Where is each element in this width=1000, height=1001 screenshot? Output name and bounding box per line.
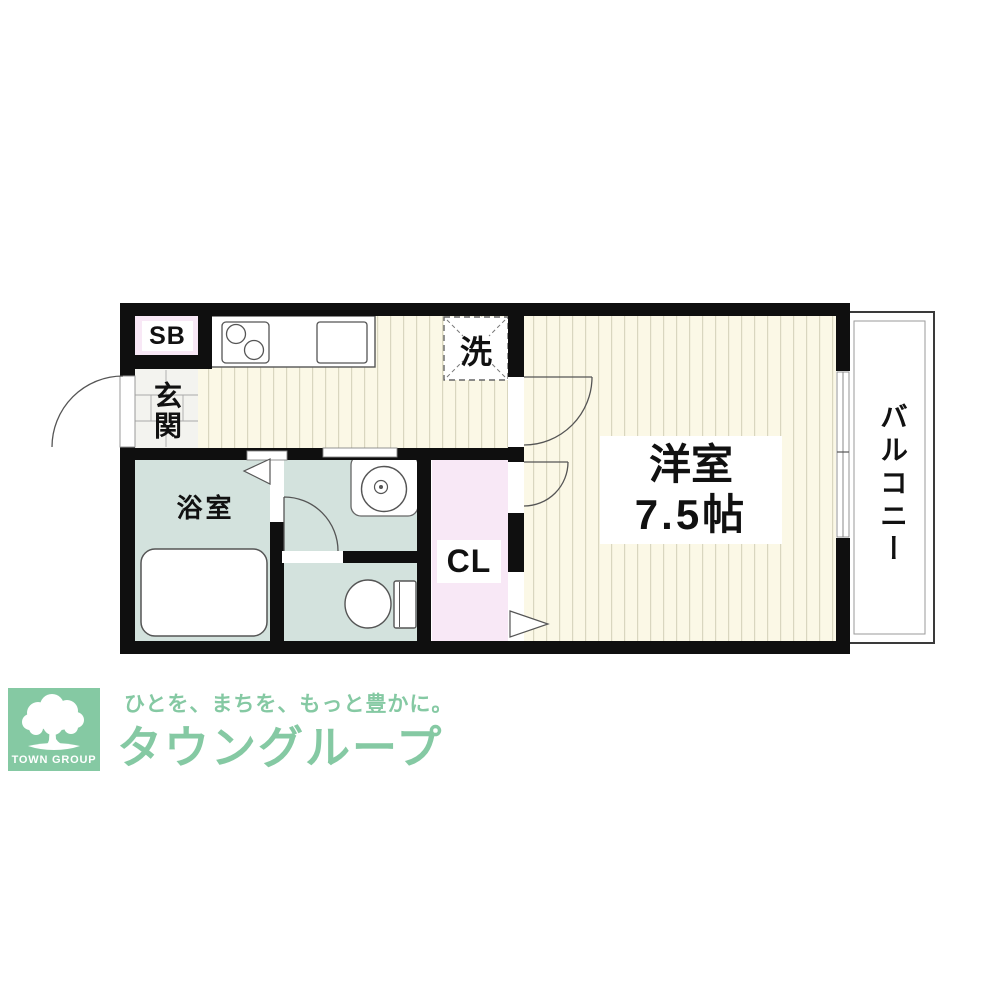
burner-shape bbox=[245, 341, 264, 360]
bathtub-shape bbox=[141, 549, 267, 636]
kitchen-sink-shape bbox=[317, 322, 367, 363]
balcony-window bbox=[836, 371, 850, 538]
floorplan-page: SB 玄関 洗 浴室 CL 洋室 7.5帖 バルコニー TOWN GROUP ひ… bbox=[0, 0, 1000, 1001]
main-room-label: 洋室 7.5帖 bbox=[600, 436, 782, 544]
main-room-name: 洋室 bbox=[649, 440, 733, 490]
bathroom-label: 浴室 bbox=[158, 488, 253, 525]
main-room-size: 7.5帖 bbox=[635, 490, 747, 540]
brand-name: タウングループ bbox=[117, 711, 443, 776]
burner-shape bbox=[227, 325, 246, 344]
entrance-label: 玄関 bbox=[150, 374, 186, 448]
tree-icon bbox=[8, 690, 100, 752]
sliding-door-panel bbox=[323, 448, 397, 457]
balcony-label: バルコニー bbox=[872, 368, 912, 600]
kitchen-counter bbox=[209, 316, 375, 367]
entrance-door-arc bbox=[52, 376, 123, 447]
logo-caption: TOWN GROUP bbox=[8, 754, 100, 766]
laundry-label: 洗 bbox=[449, 331, 503, 368]
sliding-door-panel bbox=[247, 451, 287, 460]
storage-box-label: SB bbox=[142, 321, 193, 351]
washbasin-shape bbox=[351, 455, 418, 516]
closet-label: CL bbox=[437, 540, 501, 583]
town-group-logo: TOWN GROUP bbox=[8, 688, 100, 771]
toilet-shape bbox=[345, 580, 416, 628]
entrance-door-leaf bbox=[120, 376, 135, 447]
